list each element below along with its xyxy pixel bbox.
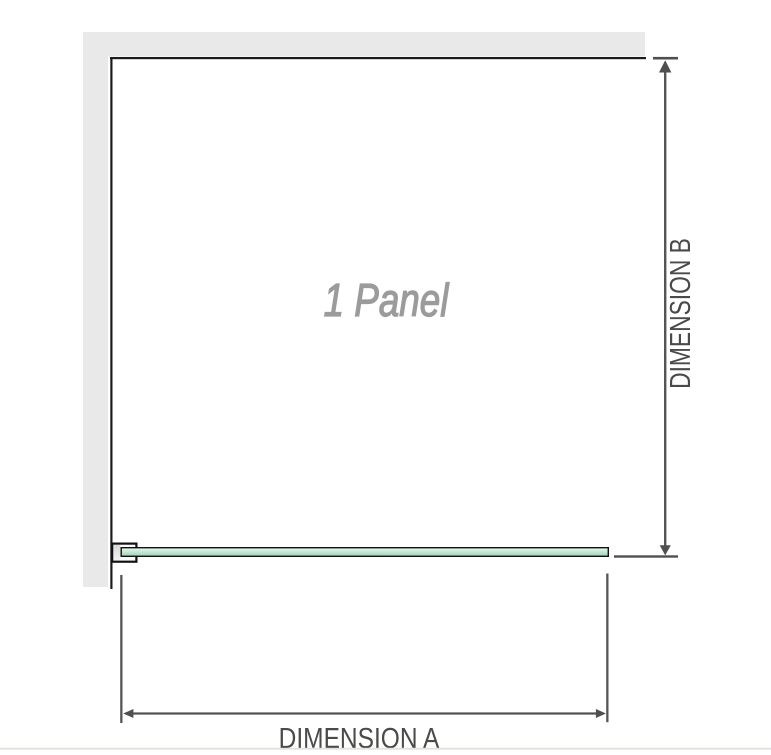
svg-text:DIMENSION B: DIMENSION B — [666, 238, 697, 389]
svg-text:1 Panel: 1 Panel — [324, 274, 450, 326]
svg-text:DIMENSION A: DIMENSION A — [279, 722, 440, 754]
